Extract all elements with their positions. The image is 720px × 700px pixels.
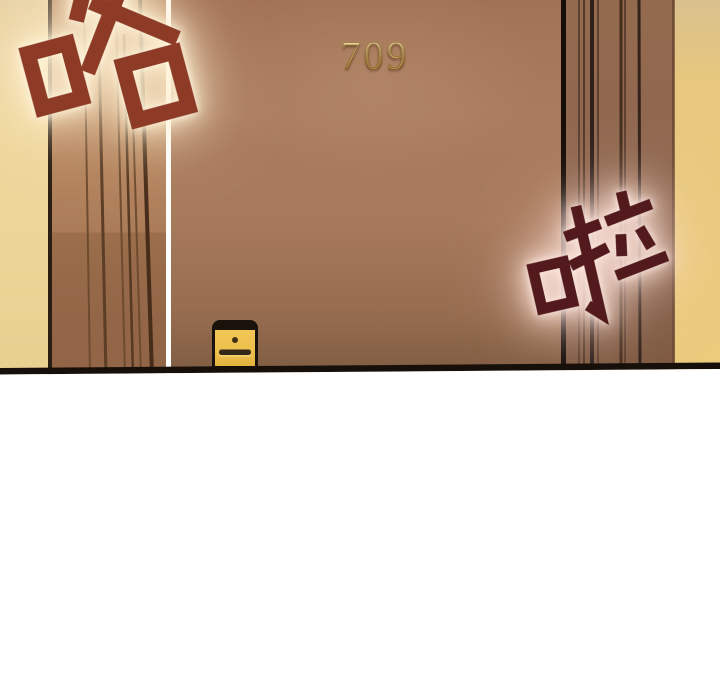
- floor-line: [0, 0, 720, 375]
- panel-gutter: [0, 375, 720, 700]
- scene-artwork: 709 咯: [0, 0, 720, 375]
- comic-panel: 709 咯: [0, 0, 720, 700]
